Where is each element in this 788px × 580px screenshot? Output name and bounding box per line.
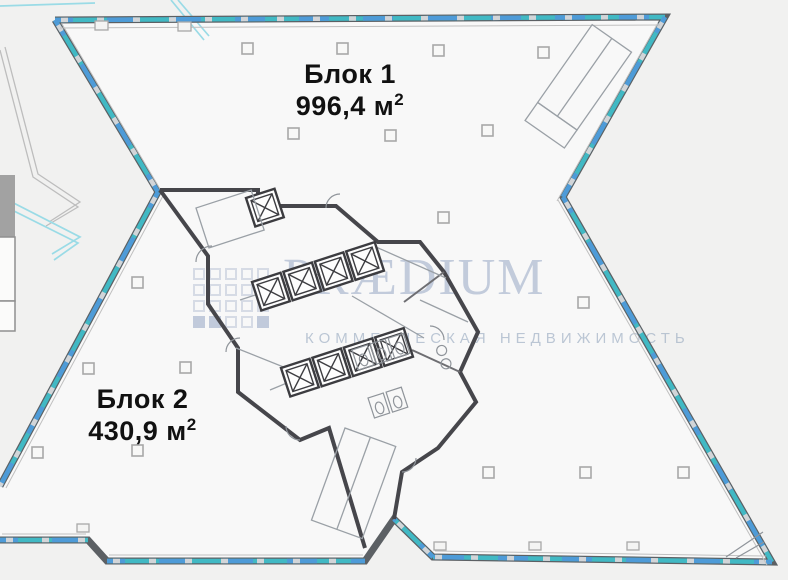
exterior-walls: [0, 17, 772, 562]
legend-partial: [0, 175, 15, 331]
floorplan-drawing: [0, 0, 788, 580]
elevator-bank-upper: [252, 242, 384, 310]
stairwell-core-lower: [311, 428, 395, 539]
stairwell-top-right: [525, 25, 631, 148]
elevator-bank-lower: [281, 328, 413, 396]
wall-inner-face-lines: [2, 23, 767, 565]
window-bands: [0, 17, 772, 562]
utility-lines-cyan: [0, 0, 209, 260]
bathroom-stalls-row2: [368, 387, 408, 418]
elevator-single-top: [246, 189, 284, 227]
bathroom-sinks: [435, 344, 452, 370]
floorplan-canvas: PRÆDIUM КОММЕРЧЕСКАЯ НЕДВИЖИМОСТЬ: [0, 0, 788, 580]
